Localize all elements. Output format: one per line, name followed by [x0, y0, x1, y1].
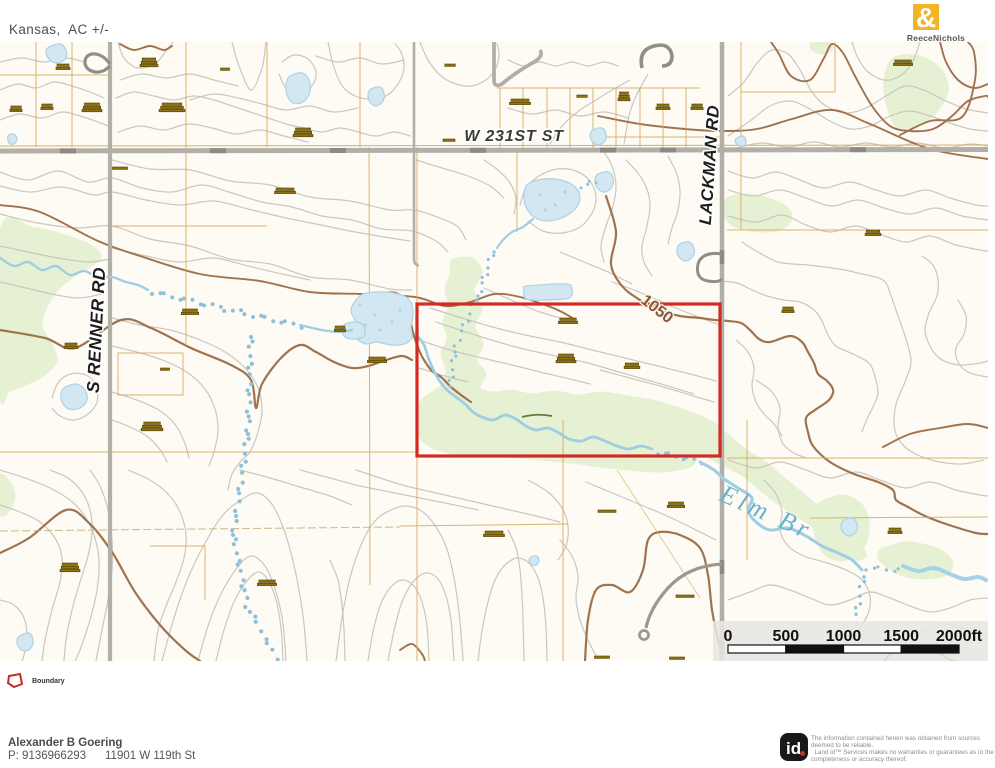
svg-text:0: 0 [724, 628, 733, 645]
svg-text:Boundary: Boundary [32, 678, 65, 685]
svg-text:W 231ST ST: W 231ST ST [464, 128, 564, 145]
svg-text:1500: 1500 [883, 628, 919, 645]
svg-text:500: 500 [772, 628, 799, 645]
svg-text:2000ft: 2000ft [936, 628, 983, 645]
svg-text:1000: 1000 [826, 628, 862, 645]
svg-text:id: id [786, 739, 801, 758]
